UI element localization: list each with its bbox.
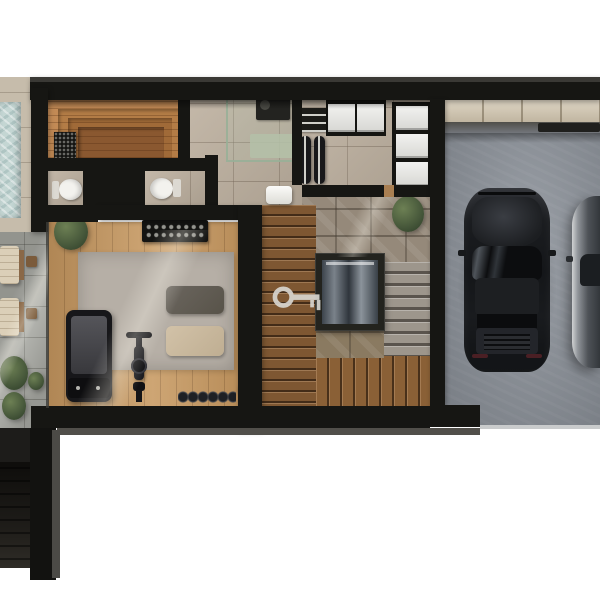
- storage-box-2: [396, 134, 428, 158]
- wall-garage-bottom-foot: [430, 405, 480, 427]
- toilet-left-tank: [52, 181, 59, 199]
- yoga-mat-light: [166, 326, 224, 356]
- key-icon: [272, 286, 328, 312]
- car-1-taillight-left: [472, 354, 488, 358]
- exterior-stair-top-shadow: [0, 428, 30, 462]
- wall-garage-left: [430, 99, 445, 407]
- sun-lounger-1: [0, 246, 19, 284]
- sun-lounger-1-frame: [19, 250, 24, 280]
- plant-patio-2: [2, 392, 26, 420]
- plant-patio-3: [28, 372, 44, 390]
- bike-crank: [131, 358, 147, 374]
- stone-patch-below-elevator: [316, 328, 384, 358]
- car-1-taillight-right: [526, 354, 542, 358]
- wall-wc-middle-right: [205, 155, 218, 207]
- treadmill-console: [68, 378, 110, 398]
- plant-utility: [392, 196, 424, 232]
- storage-box-1: [396, 106, 428, 130]
- wall-gym-north: [98, 205, 238, 220]
- garage-floor-edge: [480, 425, 600, 429]
- outer-wall-bottom-face: [57, 428, 480, 435]
- exercise-bike: [124, 330, 154, 404]
- dumbbell-rack: [142, 220, 208, 242]
- water-tank-2: [314, 136, 325, 184]
- elevator-glass-highlight: [326, 262, 374, 265]
- car-1: [464, 188, 550, 372]
- toilet-left-bowl: [59, 179, 82, 200]
- gym-glass-wall: [46, 222, 49, 408]
- car-2-windshield: [580, 254, 600, 286]
- car-2-mirror: [566, 256, 573, 262]
- bike-base: [136, 390, 142, 402]
- wall-gym-stairhall: [238, 205, 262, 430]
- stone-steps: [384, 262, 430, 356]
- side-table-2: [26, 308, 37, 319]
- shower-mat: [250, 134, 294, 158]
- exterior-stair-wall-face: [52, 430, 60, 578]
- wall-wc-left-bottom: [31, 205, 98, 222]
- treadmill-belt: [71, 316, 107, 374]
- shadow-under-garage-header: [445, 133, 600, 143]
- shadow-under-top-wall: [48, 100, 430, 109]
- car-1-roof: [475, 278, 539, 316]
- floor-plan-render: [0, 0, 600, 600]
- sauna-heater: [54, 132, 76, 158]
- garage-door-header: [445, 99, 600, 122]
- wall-laundry-south-left: [302, 185, 384, 197]
- car-1-grille: [484, 334, 530, 350]
- sun-lounger-2: [0, 298, 19, 336]
- outer-wall-bottom: [31, 406, 430, 428]
- car-1-hood: [472, 197, 542, 247]
- laundry-door: [384, 185, 394, 197]
- dumbbell-rack-weights: [145, 223, 205, 239]
- car-1-mirror-right: [548, 250, 556, 256]
- car-1-rear-window: [477, 314, 537, 328]
- car-1-windshield: [472, 246, 542, 280]
- storage-box-3: [396, 162, 428, 186]
- car-2: [572, 196, 600, 368]
- yoga-mat-dark: [166, 286, 224, 314]
- garage-door-track: [538, 123, 600, 132]
- sun-lounger-2-frame: [19, 302, 24, 332]
- free-weight-row: [178, 386, 236, 408]
- car-1-mirror-left: [458, 250, 466, 256]
- utility-shelf: [300, 108, 326, 132]
- washbasin: [266, 186, 292, 204]
- toilet-middle-bowl: [150, 178, 173, 199]
- treadmill: [66, 310, 112, 402]
- toilet-middle-tank: [173, 179, 181, 197]
- plant-patio-1: [0, 356, 28, 390]
- side-table-1: [26, 256, 37, 267]
- outer-wall-top-face: [30, 77, 600, 82]
- wall-core-between-wcs: [83, 165, 145, 207]
- wall-laundry-south-right: [394, 185, 432, 197]
- swimming-pool: [0, 102, 21, 218]
- car-1-front-trim: [478, 192, 536, 195]
- treadmill-console-light-1: [76, 386, 80, 390]
- wood-stairs-bottom-run: [316, 356, 430, 408]
- treadmill-console-light-2: [96, 386, 100, 390]
- sauna-bench-step-3: [78, 127, 164, 158]
